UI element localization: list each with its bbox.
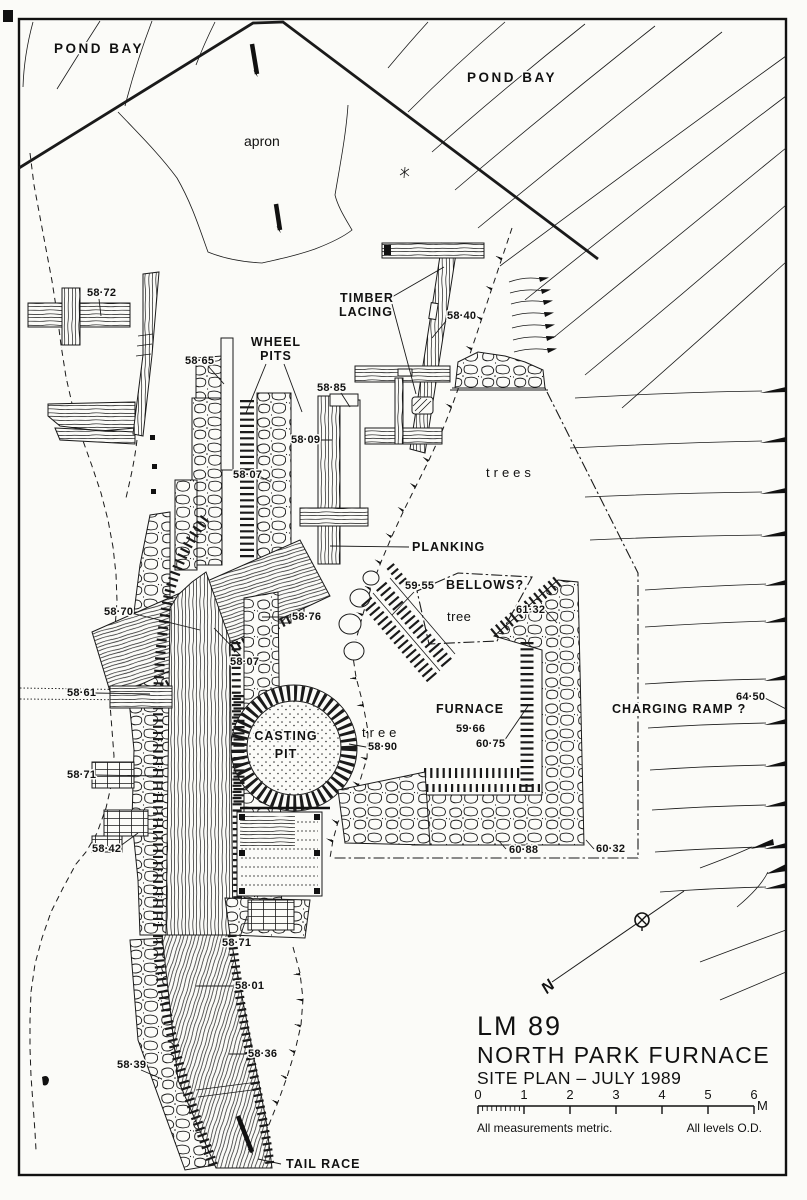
elevation-58-90: 58·90 <box>368 741 397 753</box>
scale-unit: M <box>757 1098 768 1113</box>
timber-lacing-label-2: LACING <box>339 305 393 319</box>
site-plan-sheet: N POND BAY POND BAY apron trees tree tre… <box>0 0 807 1200</box>
note-measurements: All measurements metric. <box>477 1121 612 1135</box>
apron-label: apron <box>244 133 280 149</box>
casting-pit-label-1: CASTING <box>254 729 317 743</box>
elevation-58-01: 58·01 <box>235 980 264 992</box>
elevation-58-07-lower: 58·07 <box>230 656 259 668</box>
elevation-58-72: 58·72 <box>87 287 116 299</box>
scale-tick-2: 2 <box>566 1087 573 1102</box>
bellows-label: BELLOWS? <box>446 578 524 592</box>
note-levels: All levels O.D. <box>687 1121 762 1135</box>
elevation-58-09: 58·09 <box>291 434 320 446</box>
elevation-59-55: 59·55 <box>405 580 434 592</box>
pond-bay-right-label: POND BAY <box>467 70 557 85</box>
pond-bay-left-label: POND BAY <box>54 41 144 56</box>
elevation-58-71-west: 58·71 <box>67 769 96 781</box>
elevation-59-66: 59·66 <box>456 723 485 735</box>
elevation-58-39: 58·39 <box>117 1059 146 1071</box>
scale-tick-5: 5 <box>704 1087 711 1102</box>
corner-registration-mark <box>3 10 13 22</box>
elevation-58-42: 58·42 <box>92 843 121 855</box>
timber-lacing-label-1: TIMBER <box>340 291 394 305</box>
casting-pit-label-2: PIT <box>275 747 297 761</box>
furnace-label: FURNACE <box>436 702 504 716</box>
charging-ramp-label: CHARGING RAMP ? <box>612 702 746 716</box>
elevation-58-40: 58·40 <box>447 310 476 322</box>
scale-tick-1: 1 <box>520 1087 527 1102</box>
elevation-58-76: 58·76 <box>292 611 321 623</box>
plan-subtitle: SITE PLAN – JULY 1989 <box>477 1068 681 1088</box>
elevation-60-75: 60·75 <box>476 738 505 750</box>
wheel-pits-label-2: PITS <box>260 349 292 363</box>
wheel-pits-label-1: WHEEL <box>251 335 301 349</box>
elevation-60-88: 60·88 <box>509 844 538 856</box>
tail-race-label: TAIL RACE <box>286 1157 361 1171</box>
trees-label: trees <box>486 465 535 480</box>
scale-tick-0: 0 <box>474 1087 481 1102</box>
elevation-58-07-upper: 58·07 <box>233 469 262 481</box>
elevation-60-32: 60·32 <box>596 843 625 855</box>
scale-tick-3: 3 <box>612 1087 619 1102</box>
elevation-64-50: 64·50 <box>736 691 765 703</box>
elevation-58-70: 58·70 <box>104 606 133 618</box>
elevation-58-61: 58·61 <box>67 687 96 699</box>
tree-casting-label: tree <box>362 725 400 740</box>
site-name: NORTH PARK FURNACE <box>477 1042 770 1068</box>
elevation-61-32: 61·32 <box>516 604 545 616</box>
elevation-58-36: 58·36 <box>248 1048 277 1060</box>
elevation-58-65: 58·65 <box>185 355 214 367</box>
tree-bellows-label: tree <box>447 609 471 624</box>
planking-label: PLANKING <box>412 540 485 554</box>
site-code: LM 89 <box>477 1011 562 1041</box>
elevation-58-85: 58·85 <box>317 382 346 394</box>
scale-tick-4: 4 <box>658 1087 665 1102</box>
elevation-58-71-south: 58·71 <box>222 937 251 949</box>
